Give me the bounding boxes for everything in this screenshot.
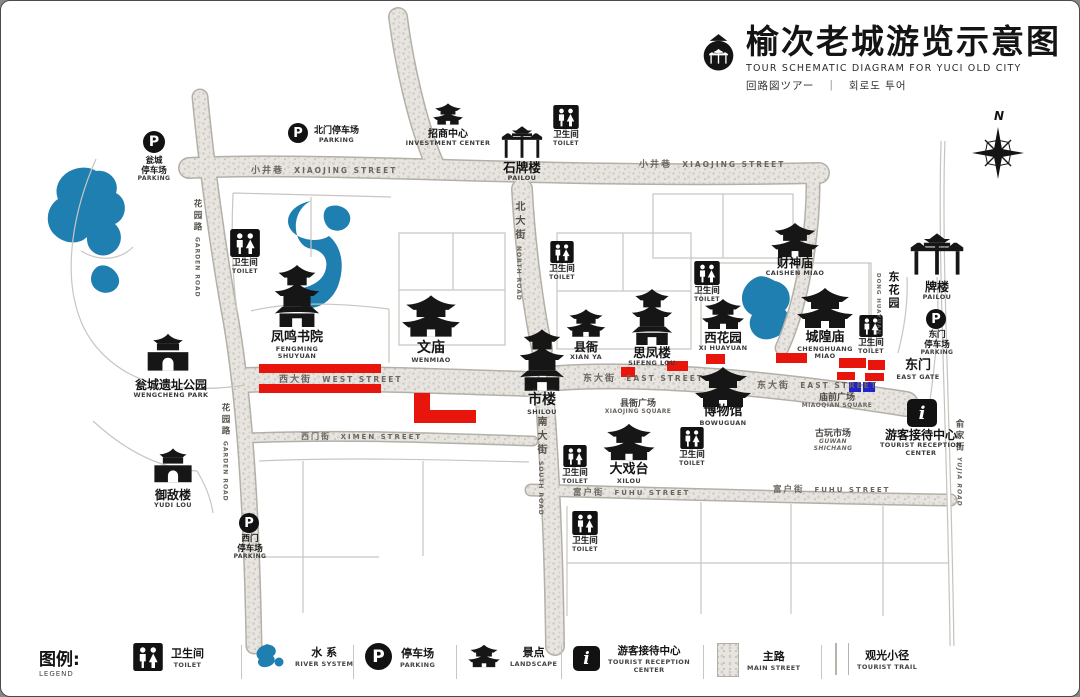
logo-seal-icon bbox=[701, 25, 736, 81]
legend-item-parking: P 停车场PARKING bbox=[365, 643, 435, 670]
landmark-east-pailou: 牌楼 PAILOU bbox=[923, 281, 952, 302]
toilet-label-3: 卫生间TOILET bbox=[549, 265, 575, 281]
legend-item-tourist-center: i 游客接待中心 TOURIST RECEPTION CENTER bbox=[573, 643, 690, 674]
legend-item-main-street: 主路MAIN STREET bbox=[717, 643, 800, 677]
legend-item-toilet: 卫生间TOILET bbox=[133, 643, 204, 671]
parking-ximen: 西门 停车场 PARKING bbox=[234, 535, 267, 561]
landmark-daxitai: 大戏台 XILOU bbox=[609, 463, 648, 485]
xianya-icon bbox=[567, 309, 606, 337]
compass-north-label: N bbox=[994, 109, 1004, 123]
street-south-road: 南大街 SOUTH ROAD bbox=[533, 416, 548, 516]
daxitai-icon bbox=[604, 424, 655, 460]
parking-icon-dongmen: P bbox=[926, 309, 946, 329]
xihuayuan-icon bbox=[702, 299, 744, 329]
street-xiaojing-east: 小井巷 XIAOJING STREET bbox=[639, 157, 785, 170]
sifenglou-icon bbox=[632, 289, 672, 345]
legend-title: 图例: LEGEND bbox=[39, 645, 80, 678]
parking-icon-wengcheng: P bbox=[143, 131, 165, 153]
street-ximen: 西门街 XIMEN STREET bbox=[301, 431, 422, 442]
landmark-shilou: 市楼 SHILOU bbox=[527, 393, 557, 416]
title-block: 榆次老城游览示意图 TOUR SCHEMATIC DIAGRAM FOR YUC… bbox=[701, 25, 1061, 93]
landmark-chenghuangmiao: 城隍庙 CHENGHUANG MIAO bbox=[797, 331, 853, 360]
river-icon bbox=[253, 643, 287, 669]
wenmiao-icon bbox=[402, 295, 460, 336]
wengcheng-park-icon bbox=[148, 334, 189, 371]
toilet-label-8: 卫生间TOILET bbox=[572, 537, 598, 553]
parking-icon: P bbox=[365, 643, 392, 670]
toilet-label-7: 卫生间TOILET bbox=[679, 451, 705, 467]
yudilou-icon bbox=[154, 448, 191, 482]
legend-bar: 图例: LEGEND 卫生间TOILET 水 系RIVER SYSTEM P 停… bbox=[1, 637, 1079, 693]
legend-item-tourist-trail: 观光小径TOURIST TRAIL bbox=[835, 643, 917, 675]
parking-icon-ximen: P bbox=[239, 513, 259, 533]
toilet-icon bbox=[133, 643, 163, 671]
street-xiaojing-west: 小井巷 XIAOJING STREET bbox=[251, 163, 397, 176]
tourist-center-icon: i bbox=[907, 399, 937, 427]
shilou-icon bbox=[520, 329, 564, 391]
toilet-label-6: 卫生间TOILET bbox=[562, 469, 588, 485]
landmark-wenmiao: 文庙 WENMIAO bbox=[411, 341, 450, 364]
toilet-label-4: 卫生间TOILET bbox=[694, 287, 720, 303]
landmark-fengming-shuyuan: 凤鸣书院 FENGMING SHUYUAN bbox=[271, 331, 323, 360]
page-title-en: TOUR SCHEMATIC DIAGRAM FOR YUCI OLD CITY bbox=[746, 63, 1061, 74]
fengming-shuyuan-icon bbox=[275, 265, 320, 327]
investment-center-icon bbox=[433, 103, 463, 124]
parking-beimen: P 北门停车场 PARKING bbox=[288, 123, 359, 144]
landmark-bowuguan: 博物馆 BOWUGUAN bbox=[699, 405, 746, 427]
label-xianya-square: 县衙广场 XIAOJING SQUARE bbox=[605, 399, 672, 416]
street-east-1: 东大街 EAST STREET bbox=[583, 371, 704, 384]
tourist-trail-swatch-icon bbox=[835, 643, 849, 675]
tour-map-page: 榆次老城游览示意图 TOUR SCHEMATIC DIAGRAM FOR YUC… bbox=[0, 0, 1080, 697]
landmark-yudilou: 御敌楼 YUDI LOU bbox=[154, 489, 192, 510]
landmark-xihuayuan: 西花园 XI HUAYUAN bbox=[699, 331, 748, 352]
landmark-wengcheng-park: 瓮城遗址公园 WENGCHENG PARK bbox=[134, 379, 209, 400]
landmark-xianya: 县衙 XIAN YA bbox=[570, 341, 602, 362]
street-garden-road-north: 花园路 GARDEN ROAD bbox=[191, 199, 203, 297]
parking-icon-beimen: P bbox=[288, 123, 308, 143]
label-miaoqian-square: 庙前广场 MIAOQIAN SQUARE bbox=[802, 393, 873, 410]
toilet-label-5: 卫生间TOILET bbox=[858, 339, 884, 355]
landmark-donghuayuan: DONG HUAYUAN bbox=[875, 273, 883, 335]
landmark-shipailou: 石牌楼 PAILOU bbox=[503, 161, 541, 182]
info-icon: i bbox=[573, 646, 600, 671]
legend-item-landscape: 景点LANDSCAPE bbox=[466, 643, 557, 669]
street-fuhu-2: 富户街 FUHU STREET bbox=[773, 483, 890, 495]
compass-icon bbox=[972, 127, 1024, 179]
landmark-sifenglou: 思凤楼 SIFENG LOU bbox=[628, 346, 676, 367]
landmark-caishenmiao: 财神庙 CAISHEN MIAO bbox=[766, 257, 825, 278]
landscape-icon bbox=[466, 643, 502, 669]
toilet-label-2: 卫生间TOILET bbox=[553, 131, 579, 147]
label-guwan-shichang: 古玩市场 GUWAN SHICHANG bbox=[814, 429, 853, 453]
landmark-east-gate: 东门 EAST GATE bbox=[896, 359, 939, 381]
street-fuhu-1: 富户街 FUHU STREET bbox=[573, 486, 690, 498]
street-west: 西大街 WEST STREET bbox=[279, 372, 402, 385]
map-canvas bbox=[1, 1, 1079, 696]
landmark-donghuayuan-zh: 东花园 bbox=[885, 271, 901, 310]
page-title: 榆次老城游览示意图 bbox=[746, 25, 1061, 60]
stone-pailou-icon bbox=[502, 126, 542, 158]
street-east-2: 东大街 EAST STREET bbox=[757, 378, 878, 391]
parking-dongmen: 东门 停车场 PARKING bbox=[921, 331, 954, 357]
street-north-road: 北大街 NORTH ROAD bbox=[511, 201, 526, 301]
east-pailou-icon bbox=[911, 233, 964, 274]
landmark-tourist-center: 游客接待中心 TOURIST RECEPTION CENTER bbox=[880, 429, 962, 457]
road-yujia bbox=[942, 141, 952, 646]
landmark-investment-center: 招商中心 INVESTMENT CENTER bbox=[406, 129, 491, 147]
page-title-sub: 回路図ツアー ｜ 회로도 투어 bbox=[746, 78, 1061, 93]
toilet-label-1: 卫生间TOILET bbox=[232, 259, 258, 275]
parking-wengcheng: 瓮城 停车场 PARKING bbox=[138, 157, 171, 183]
main-street-swatch-icon bbox=[717, 643, 739, 677]
street-garden-road-south: 花园路 GARDEN ROAD bbox=[219, 403, 231, 501]
legend-item-water: 水 系RIVER SYSTEM bbox=[253, 643, 353, 669]
